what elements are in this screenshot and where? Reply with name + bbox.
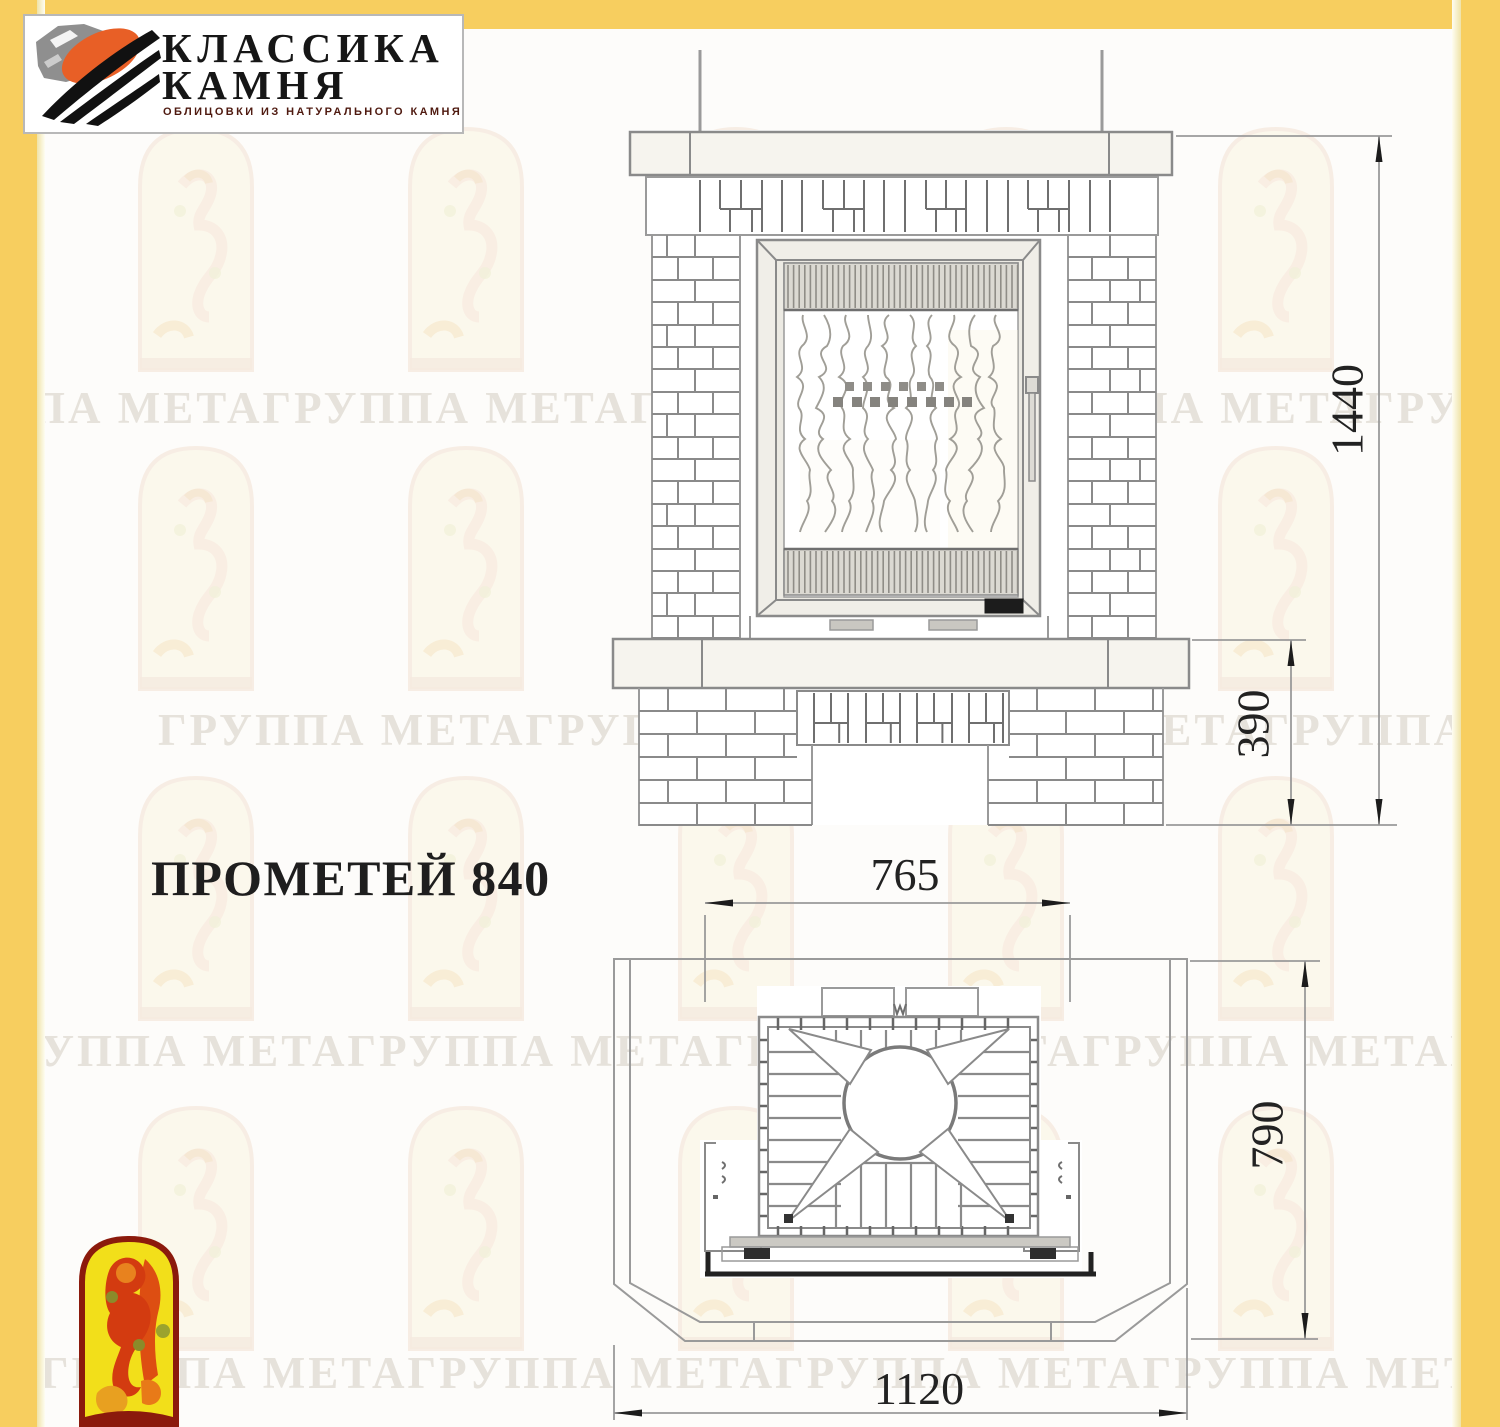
svg-text:790: 790 xyxy=(1242,1101,1293,1170)
svg-text:765: 765 xyxy=(871,849,940,900)
svg-text:390: 390 xyxy=(1228,690,1279,759)
svg-text:1120: 1120 xyxy=(874,1363,964,1414)
svg-text:1440: 1440 xyxy=(1322,364,1373,456)
